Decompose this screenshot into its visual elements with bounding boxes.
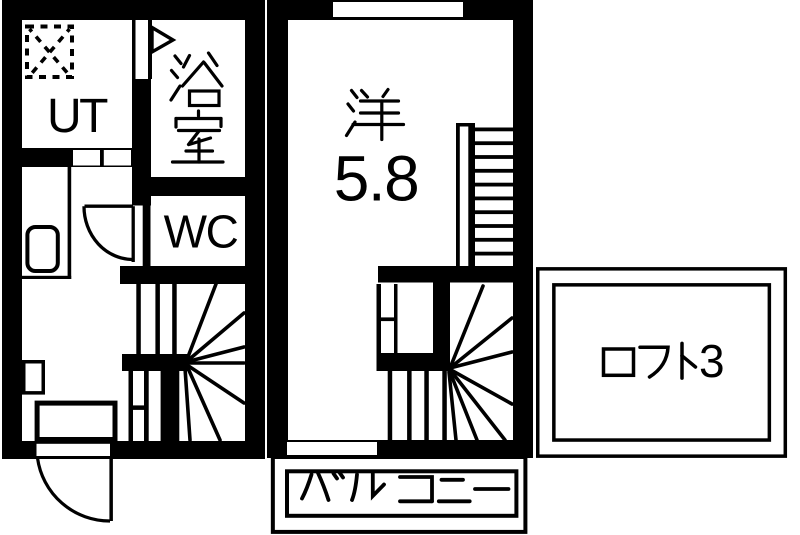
svg-text:WC: WC	[164, 206, 238, 258]
svg-text:UT: UT	[47, 90, 108, 143]
svg-text:3: 3	[699, 335, 725, 387]
svg-text:5.8: 5.8	[334, 143, 418, 215]
